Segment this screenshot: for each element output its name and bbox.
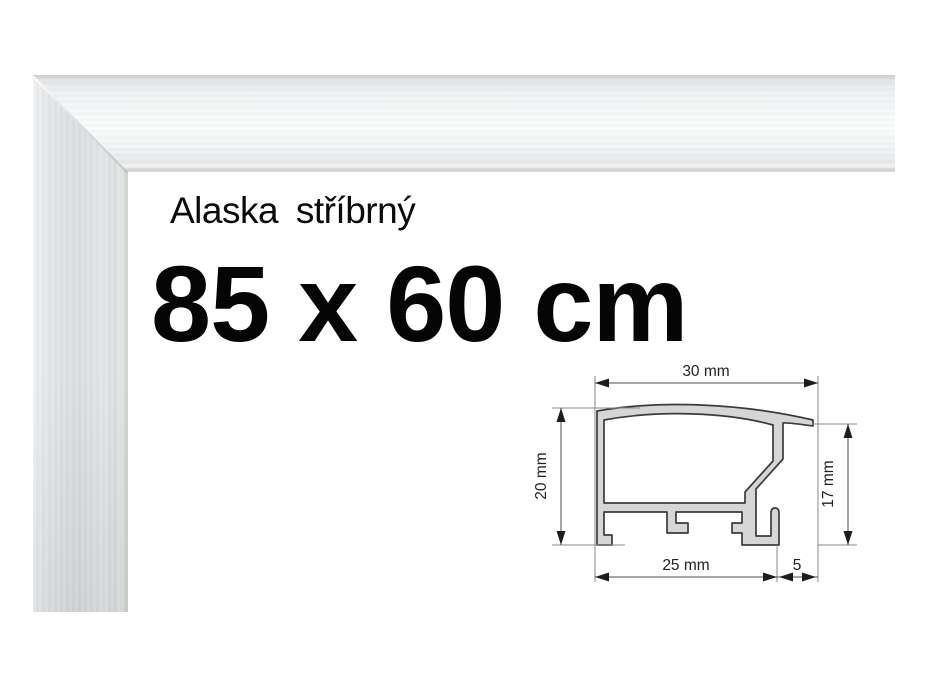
dim-label-bottom-width: 25 mm bbox=[662, 557, 709, 574]
dim-label-right-height: 17 mm bbox=[820, 460, 837, 507]
profile-outline bbox=[597, 405, 813, 545]
dim-label-left-height: 20 mm bbox=[533, 452, 550, 499]
dim-label-bottom-right-width: 5 bbox=[793, 557, 802, 574]
product-image: Alaska stříbrný 85 x 60 cm bbox=[0, 0, 928, 686]
profile-cross-section-diagram: 30 mm 20 mm 17 mm 25 mm 5 bbox=[0, 0, 928, 686]
dim-label-top-width: 30 mm bbox=[682, 363, 729, 380]
